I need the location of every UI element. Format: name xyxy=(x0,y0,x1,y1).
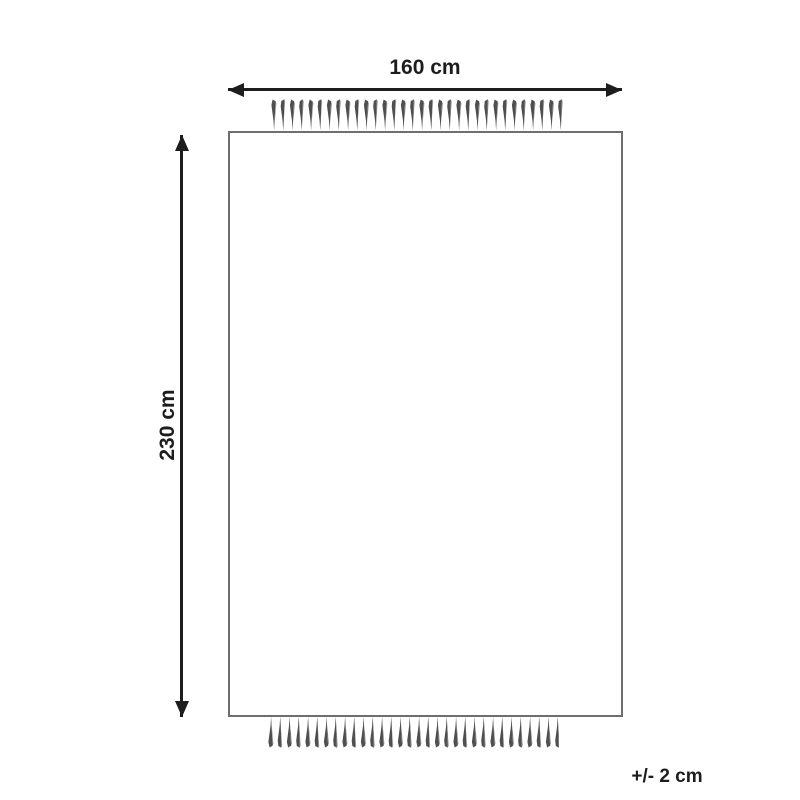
width-dimension-arrow xyxy=(228,88,622,91)
rug-outline xyxy=(228,131,623,717)
rug-fringe-bottom-icon xyxy=(267,717,559,748)
rug-dimension-diagram: 160 cm 230 cm +/- 2 cm xyxy=(0,0,800,800)
tolerance-label: +/- 2 cm xyxy=(597,766,737,788)
height-dimension-label: 230 cm xyxy=(157,375,179,475)
height-dimension-arrow xyxy=(180,135,183,717)
width-dimension-label: 160 cm xyxy=(228,56,622,80)
rug-fringe-top-icon xyxy=(270,99,566,131)
